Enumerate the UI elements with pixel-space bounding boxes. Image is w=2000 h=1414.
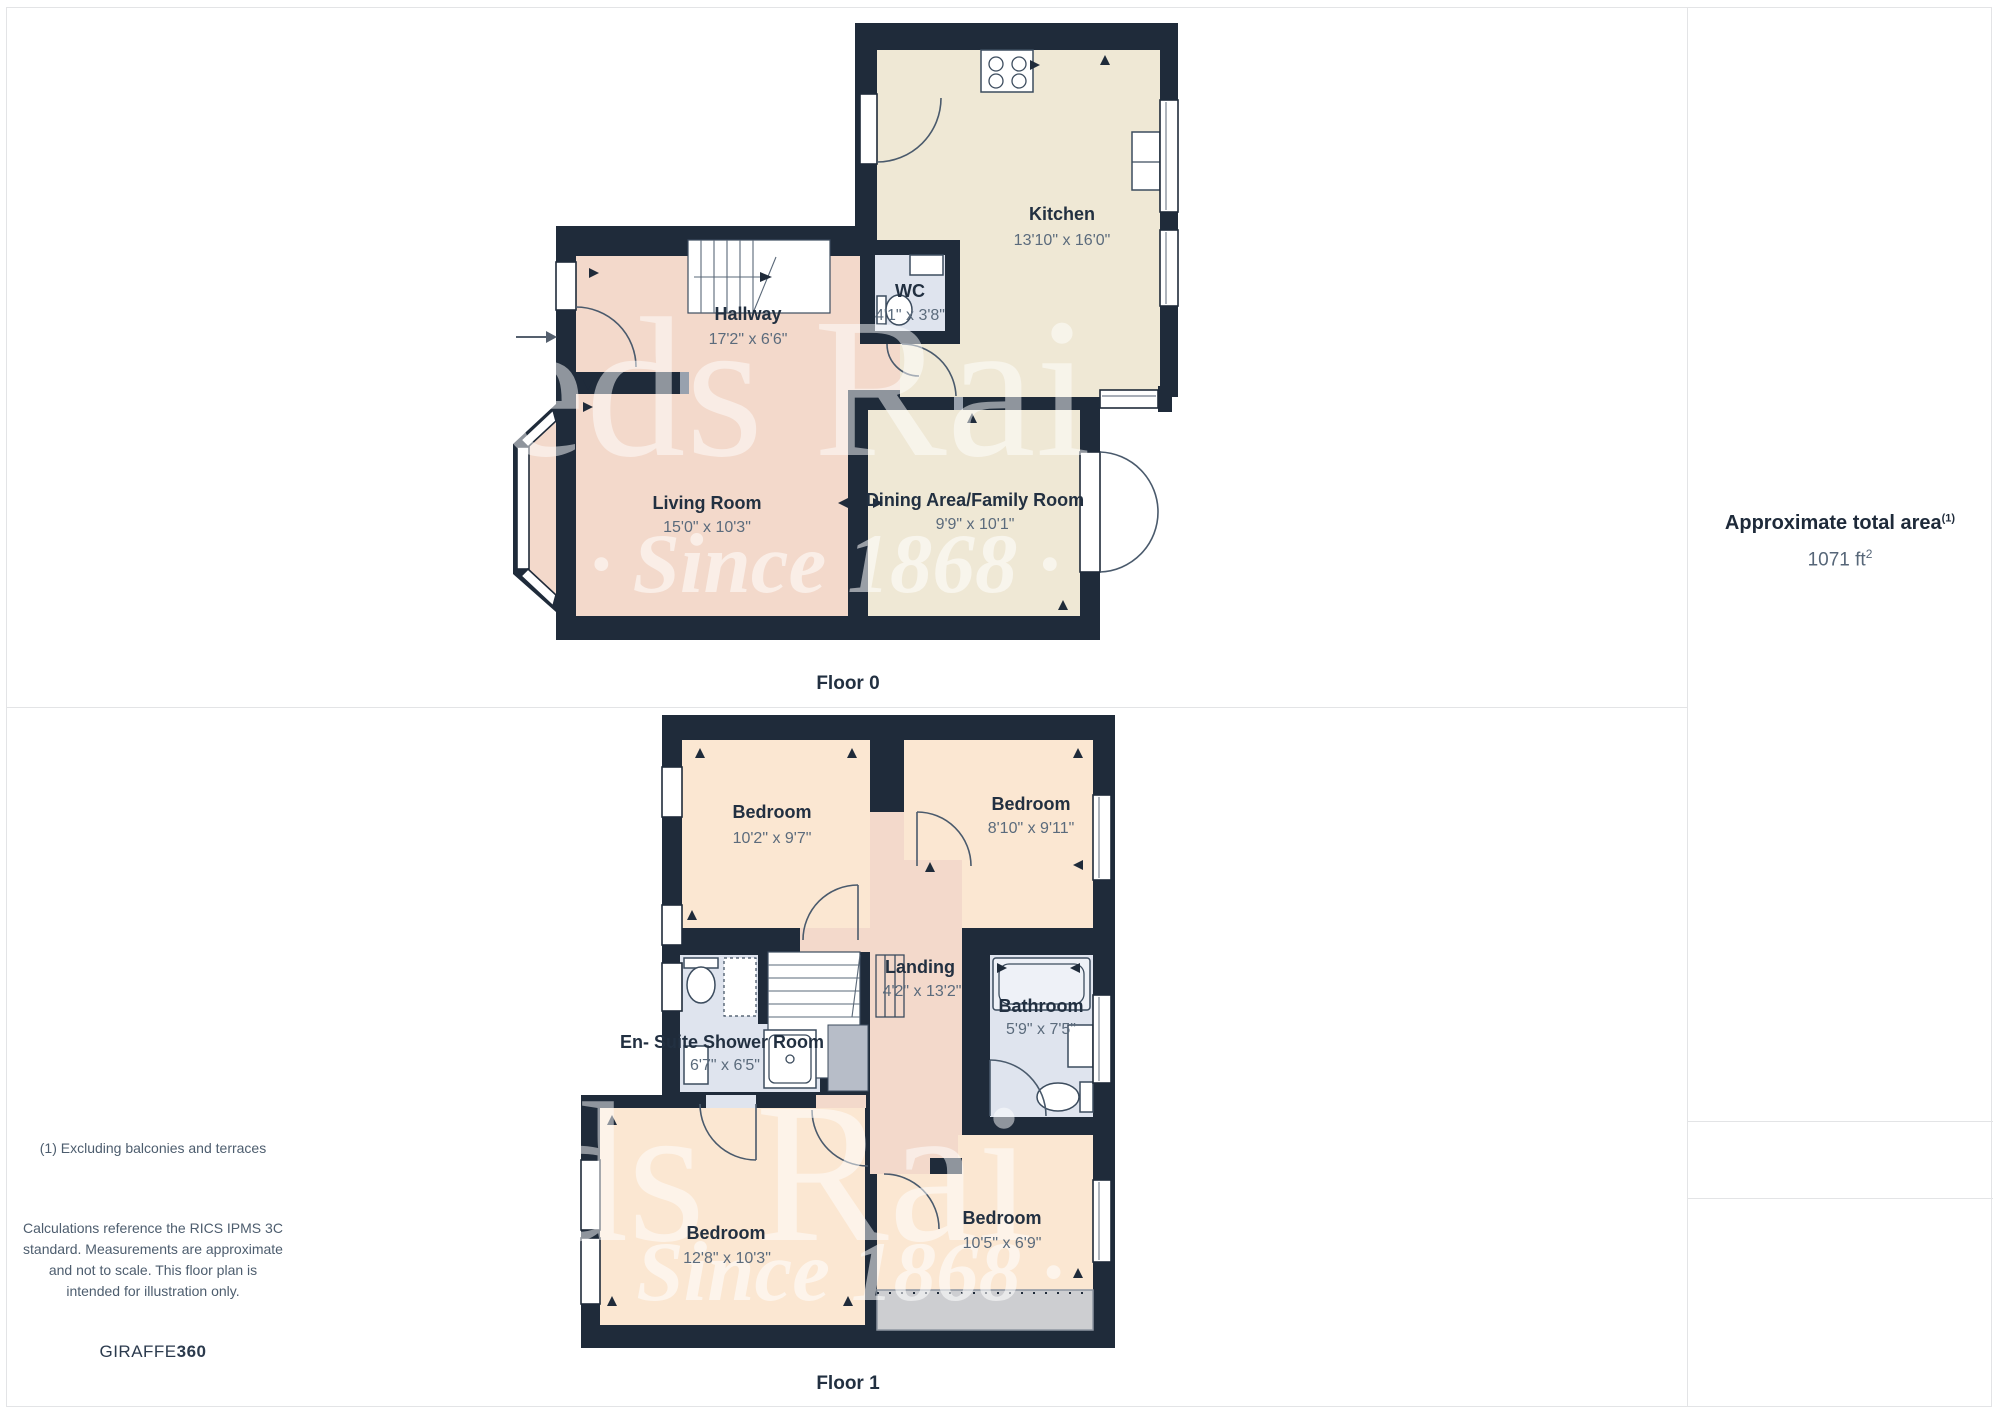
bathroom-window: [1093, 995, 1111, 1083]
total-area-footnote-marker: (1): [1942, 512, 1955, 524]
watermark-floor1: eeds Rai Since 1868 ·: [350, 1063, 1064, 1319]
footnote-text: (1) Excluding balconies and terraces: [0, 1140, 306, 1156]
bedroom-br-label: Bedroom: [962, 1208, 1041, 1228]
sidebar-rule-1: [1687, 1121, 1993, 1122]
bedroom-br-dims: 10'5" x 6'9": [963, 1235, 1042, 1252]
ensuite-window: [662, 963, 682, 1011]
wc-sink: [910, 255, 943, 275]
total-area-block: Approximate total area(1) 1071 ft2: [1687, 512, 1993, 571]
dining-label: Dining Area/Family Room: [866, 490, 1084, 510]
bedroom-bl-dims: 12'8" x 10'3": [683, 1250, 771, 1267]
living-dims: 15'0" x 10'3": [663, 519, 751, 536]
hallway-dims: 17'2" x 6'6": [709, 331, 788, 348]
bedroom-bl-label: Bedroom: [686, 1223, 765, 1243]
floor0-caption: Floor 0: [816, 673, 879, 694]
kitchen-hob: [981, 50, 1033, 92]
dining-dims: 9'9" x 10'1": [936, 516, 1015, 533]
bedroom-br-window: [1093, 1180, 1111, 1262]
kitchen-label: Kitchen: [1029, 204, 1095, 224]
living-label: Living Room: [653, 493, 762, 513]
hallway-label: Hallway: [714, 304, 781, 324]
kitchen-dims: 13'10" x 16'0": [1014, 232, 1111, 249]
floorplan-page: eeds Rai · Since 1868 · Kitchen 13'10" x…: [0, 0, 2000, 1414]
floor0-plan: eeds Rai · Since 1868 · Kitchen 13'10" x…: [408, 23, 1178, 694]
ensuite-label: En- Suite Shower Room: [620, 1032, 824, 1052]
kitchen-door-opening: [860, 94, 877, 164]
kitchen-window-2: [1160, 230, 1178, 306]
floor1-plan: eeds Rai Since 1868 · Bedroom 10'2" x 9'…: [350, 715, 1115, 1394]
floor-divider: [6, 707, 1687, 708]
kitchen-window-1: [1160, 100, 1178, 212]
total-area-title: Approximate total area(1): [1687, 512, 1993, 535]
kitchen-sink: [1132, 132, 1160, 190]
ensuite-dims: 6'7" x 6'5": [690, 1057, 760, 1074]
giraffe360-logo: GIRAFFE360: [0, 1342, 306, 1362]
bedroom-tr-label: Bedroom: [991, 794, 1070, 814]
wc-label: WC: [895, 281, 925, 301]
bedroom-tl-label: Bedroom: [732, 802, 811, 822]
ensuite-tray: [724, 958, 756, 1016]
landing-label: Landing: [885, 957, 955, 977]
info-sidebar: Approximate total area(1) 1071 ft2: [1687, 7, 1993, 1407]
floor1-caption: Floor 1: [816, 1373, 880, 1394]
wc-dims: 4'1" x 3'8": [875, 307, 945, 324]
total-area-value: 1071 ft2: [1687, 547, 1993, 571]
sidebar-rule-2: [1687, 1198, 1993, 1199]
bathroom-label: Bathroom: [999, 996, 1084, 1016]
dining-window: [1100, 386, 1172, 412]
bedroom-tl-dims: 10'2" x 9'7": [733, 830, 812, 847]
french-doors: [1080, 452, 1158, 572]
bedroom-tr-window: [1093, 795, 1111, 880]
watermark-floor0: eeds Rai · Since 1868 ·: [408, 278, 1091, 611]
bedroom-tr-dims: 8'10" x 9'11": [988, 820, 1075, 837]
bathroom-dims: 5'9" x 7'5": [1006, 1021, 1076, 1038]
disclaimer-text: Calculations reference the RICS IPMS 3C …: [23, 1218, 283, 1302]
ensuite-toilet: [687, 967, 715, 1003]
landing-dims: 4'2" x 13'2": [883, 983, 962, 1000]
